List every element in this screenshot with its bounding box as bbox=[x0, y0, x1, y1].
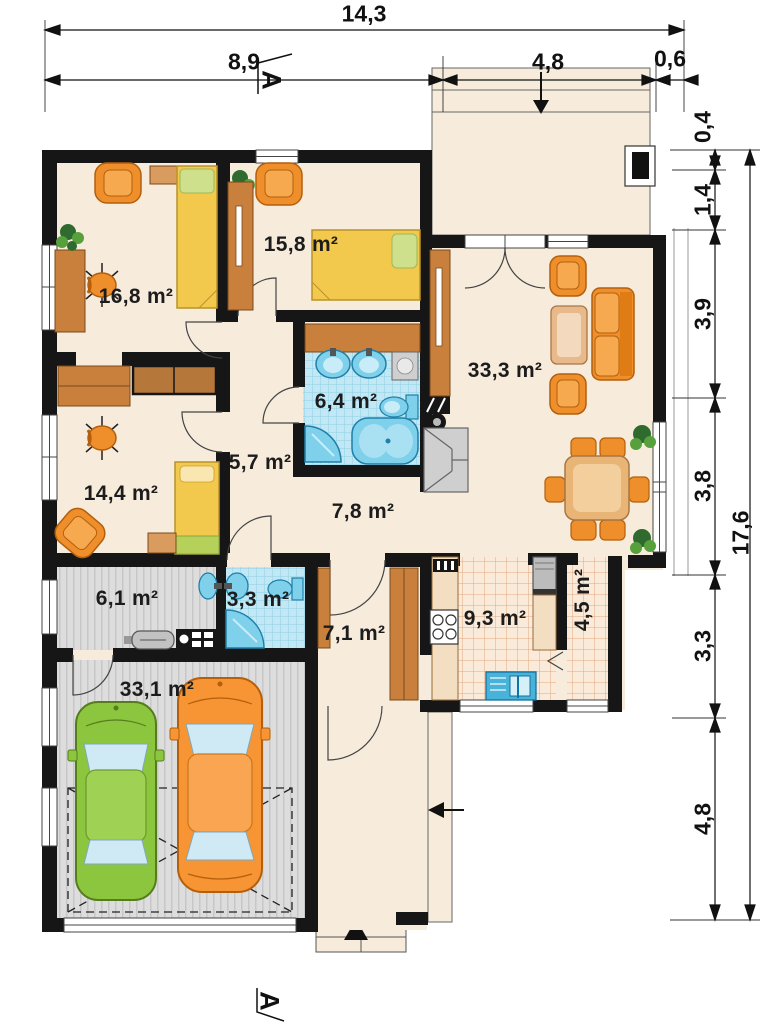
window bbox=[42, 688, 57, 746]
dim-top-total: 14,3 bbox=[342, 1, 387, 28]
room-label-hallway: 7,1 m² bbox=[323, 622, 386, 646]
chimney bbox=[625, 146, 655, 186]
toilet bbox=[380, 395, 418, 419]
room-label-hall: 7,8 m² bbox=[332, 500, 395, 524]
dim-right-seg-3: 3,9 bbox=[690, 298, 717, 330]
dim-right-seg-5: 3,3 bbox=[690, 630, 717, 662]
room-label-pantry: 4,5 m² bbox=[571, 569, 595, 632]
room-label-utility: 6,1 m² bbox=[96, 587, 159, 611]
room-label-corridor: 5,7 m² bbox=[229, 451, 292, 475]
mirror bbox=[392, 352, 418, 380]
coffee-table bbox=[551, 306, 587, 364]
wall-shelf bbox=[150, 166, 178, 184]
section-marker-bottom: A bbox=[254, 991, 285, 1011]
room-label-bedroom-2: 15,8 m² bbox=[264, 233, 338, 257]
dim-right-seg-4: 3,8 bbox=[690, 470, 717, 502]
window bbox=[460, 700, 533, 712]
room-label-garage: 33,1 m² bbox=[120, 678, 194, 702]
fireplace bbox=[424, 428, 468, 492]
side-table bbox=[148, 533, 176, 553]
terrace-door bbox=[465, 235, 545, 248]
terrace bbox=[432, 68, 655, 235]
dim-right-seg-1: 0,4 bbox=[690, 111, 717, 143]
window bbox=[42, 580, 57, 634]
room-label-bedroom-3: 14,4 m² bbox=[84, 482, 158, 506]
car-green bbox=[68, 702, 164, 900]
room-label-living-room: 33,3 m² bbox=[468, 359, 542, 383]
vanity-counter bbox=[305, 324, 420, 352]
window bbox=[42, 788, 57, 846]
floor-plan-page: 14,3 8,9 4,8 0,6 0,4 1,4 3,9 3,8 3,3 4,8… bbox=[0, 0, 768, 1023]
vent-hatch bbox=[433, 559, 458, 572]
desk bbox=[58, 366, 130, 406]
sofa bbox=[592, 288, 634, 380]
dim-top-seg-3: 0,6 bbox=[654, 46, 686, 73]
window bbox=[256, 150, 298, 163]
window bbox=[42, 415, 57, 500]
mirror-wardrobe bbox=[430, 250, 450, 396]
kitchen-sink bbox=[486, 672, 536, 700]
dim-top-seg-2: 4,8 bbox=[532, 49, 564, 76]
window bbox=[548, 235, 588, 248]
built-in-wardrobe bbox=[133, 366, 216, 394]
bathtub bbox=[352, 418, 418, 464]
garage-items bbox=[68, 678, 292, 912]
dim-right-total: 17,6 bbox=[728, 511, 755, 556]
car-orange bbox=[170, 678, 270, 892]
room-label-bathroom: 6,4 m² bbox=[315, 390, 378, 414]
roof-eave-lines bbox=[674, 228, 688, 576]
boiler bbox=[124, 629, 218, 650]
bed bbox=[175, 462, 219, 554]
room-label-bedroom-1: 16,8 m² bbox=[99, 285, 173, 309]
dim-right-seg-6: 4,8 bbox=[690, 803, 717, 835]
room-label-wc: 3,3 m² bbox=[227, 588, 290, 612]
section-marker-top: A bbox=[256, 70, 287, 90]
window bbox=[567, 700, 608, 712]
desk bbox=[55, 250, 85, 332]
fridge bbox=[533, 557, 556, 595]
stove bbox=[430, 610, 458, 644]
room-label-kitchen: 9,3 m² bbox=[464, 607, 527, 631]
dim-right-seg-2: 1,4 bbox=[690, 184, 717, 216]
kitchen-island bbox=[533, 595, 556, 650]
bed bbox=[177, 166, 217, 308]
wardrobe bbox=[228, 182, 253, 310]
garage-door bbox=[64, 918, 296, 932]
